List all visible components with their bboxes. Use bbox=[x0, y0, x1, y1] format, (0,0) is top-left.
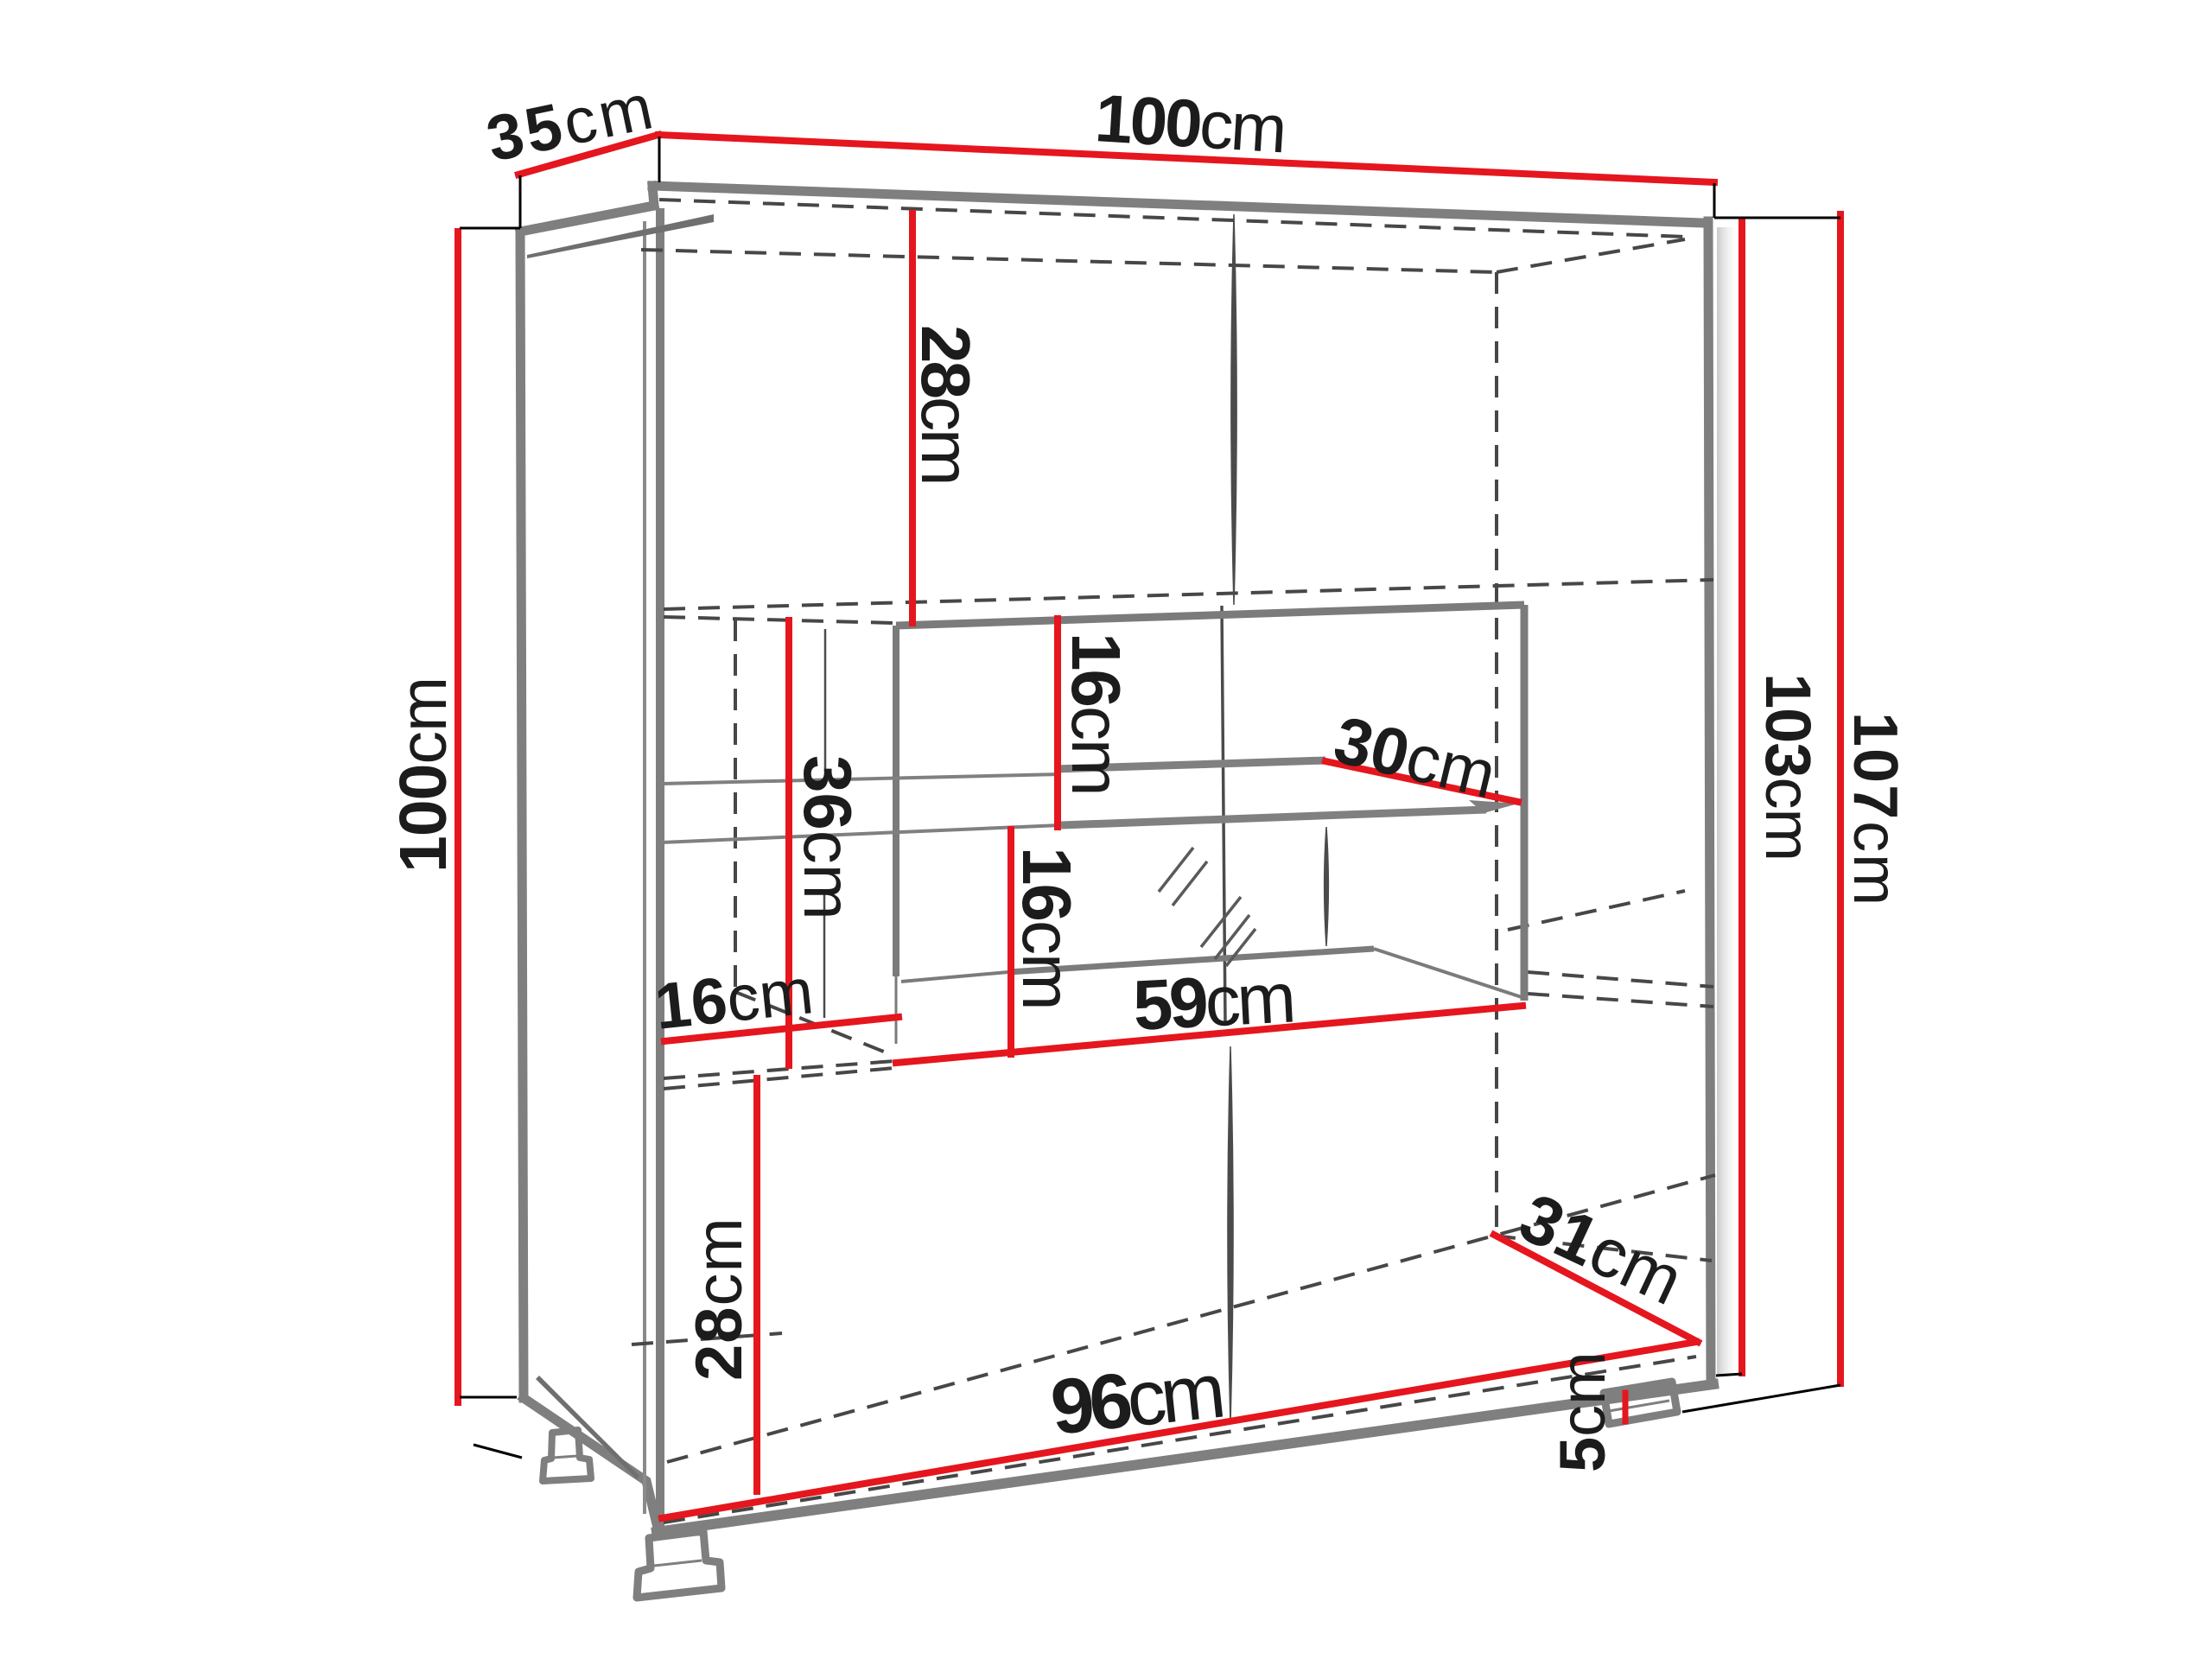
svg-text:36cm: 36cm bbox=[790, 755, 866, 920]
svg-text:107cm: 107cm bbox=[1840, 712, 1910, 907]
svg-text:59cm: 59cm bbox=[1131, 958, 1294, 1046]
svg-text:5cm: 5cm bbox=[1547, 1351, 1618, 1472]
svg-text:103cm: 103cm bbox=[1752, 673, 1824, 861]
svg-text:16cm: 16cm bbox=[1058, 632, 1135, 795]
svg-text:28cm: 28cm bbox=[907, 325, 984, 484]
svg-text:100cm: 100cm bbox=[1093, 79, 1287, 167]
svg-text:28cm: 28cm bbox=[683, 1217, 756, 1381]
svg-text:16cm: 16cm bbox=[1008, 847, 1085, 1009]
svg-text:96cm: 96cm bbox=[1047, 1348, 1225, 1452]
svg-text:100cm: 100cm bbox=[386, 677, 461, 873]
